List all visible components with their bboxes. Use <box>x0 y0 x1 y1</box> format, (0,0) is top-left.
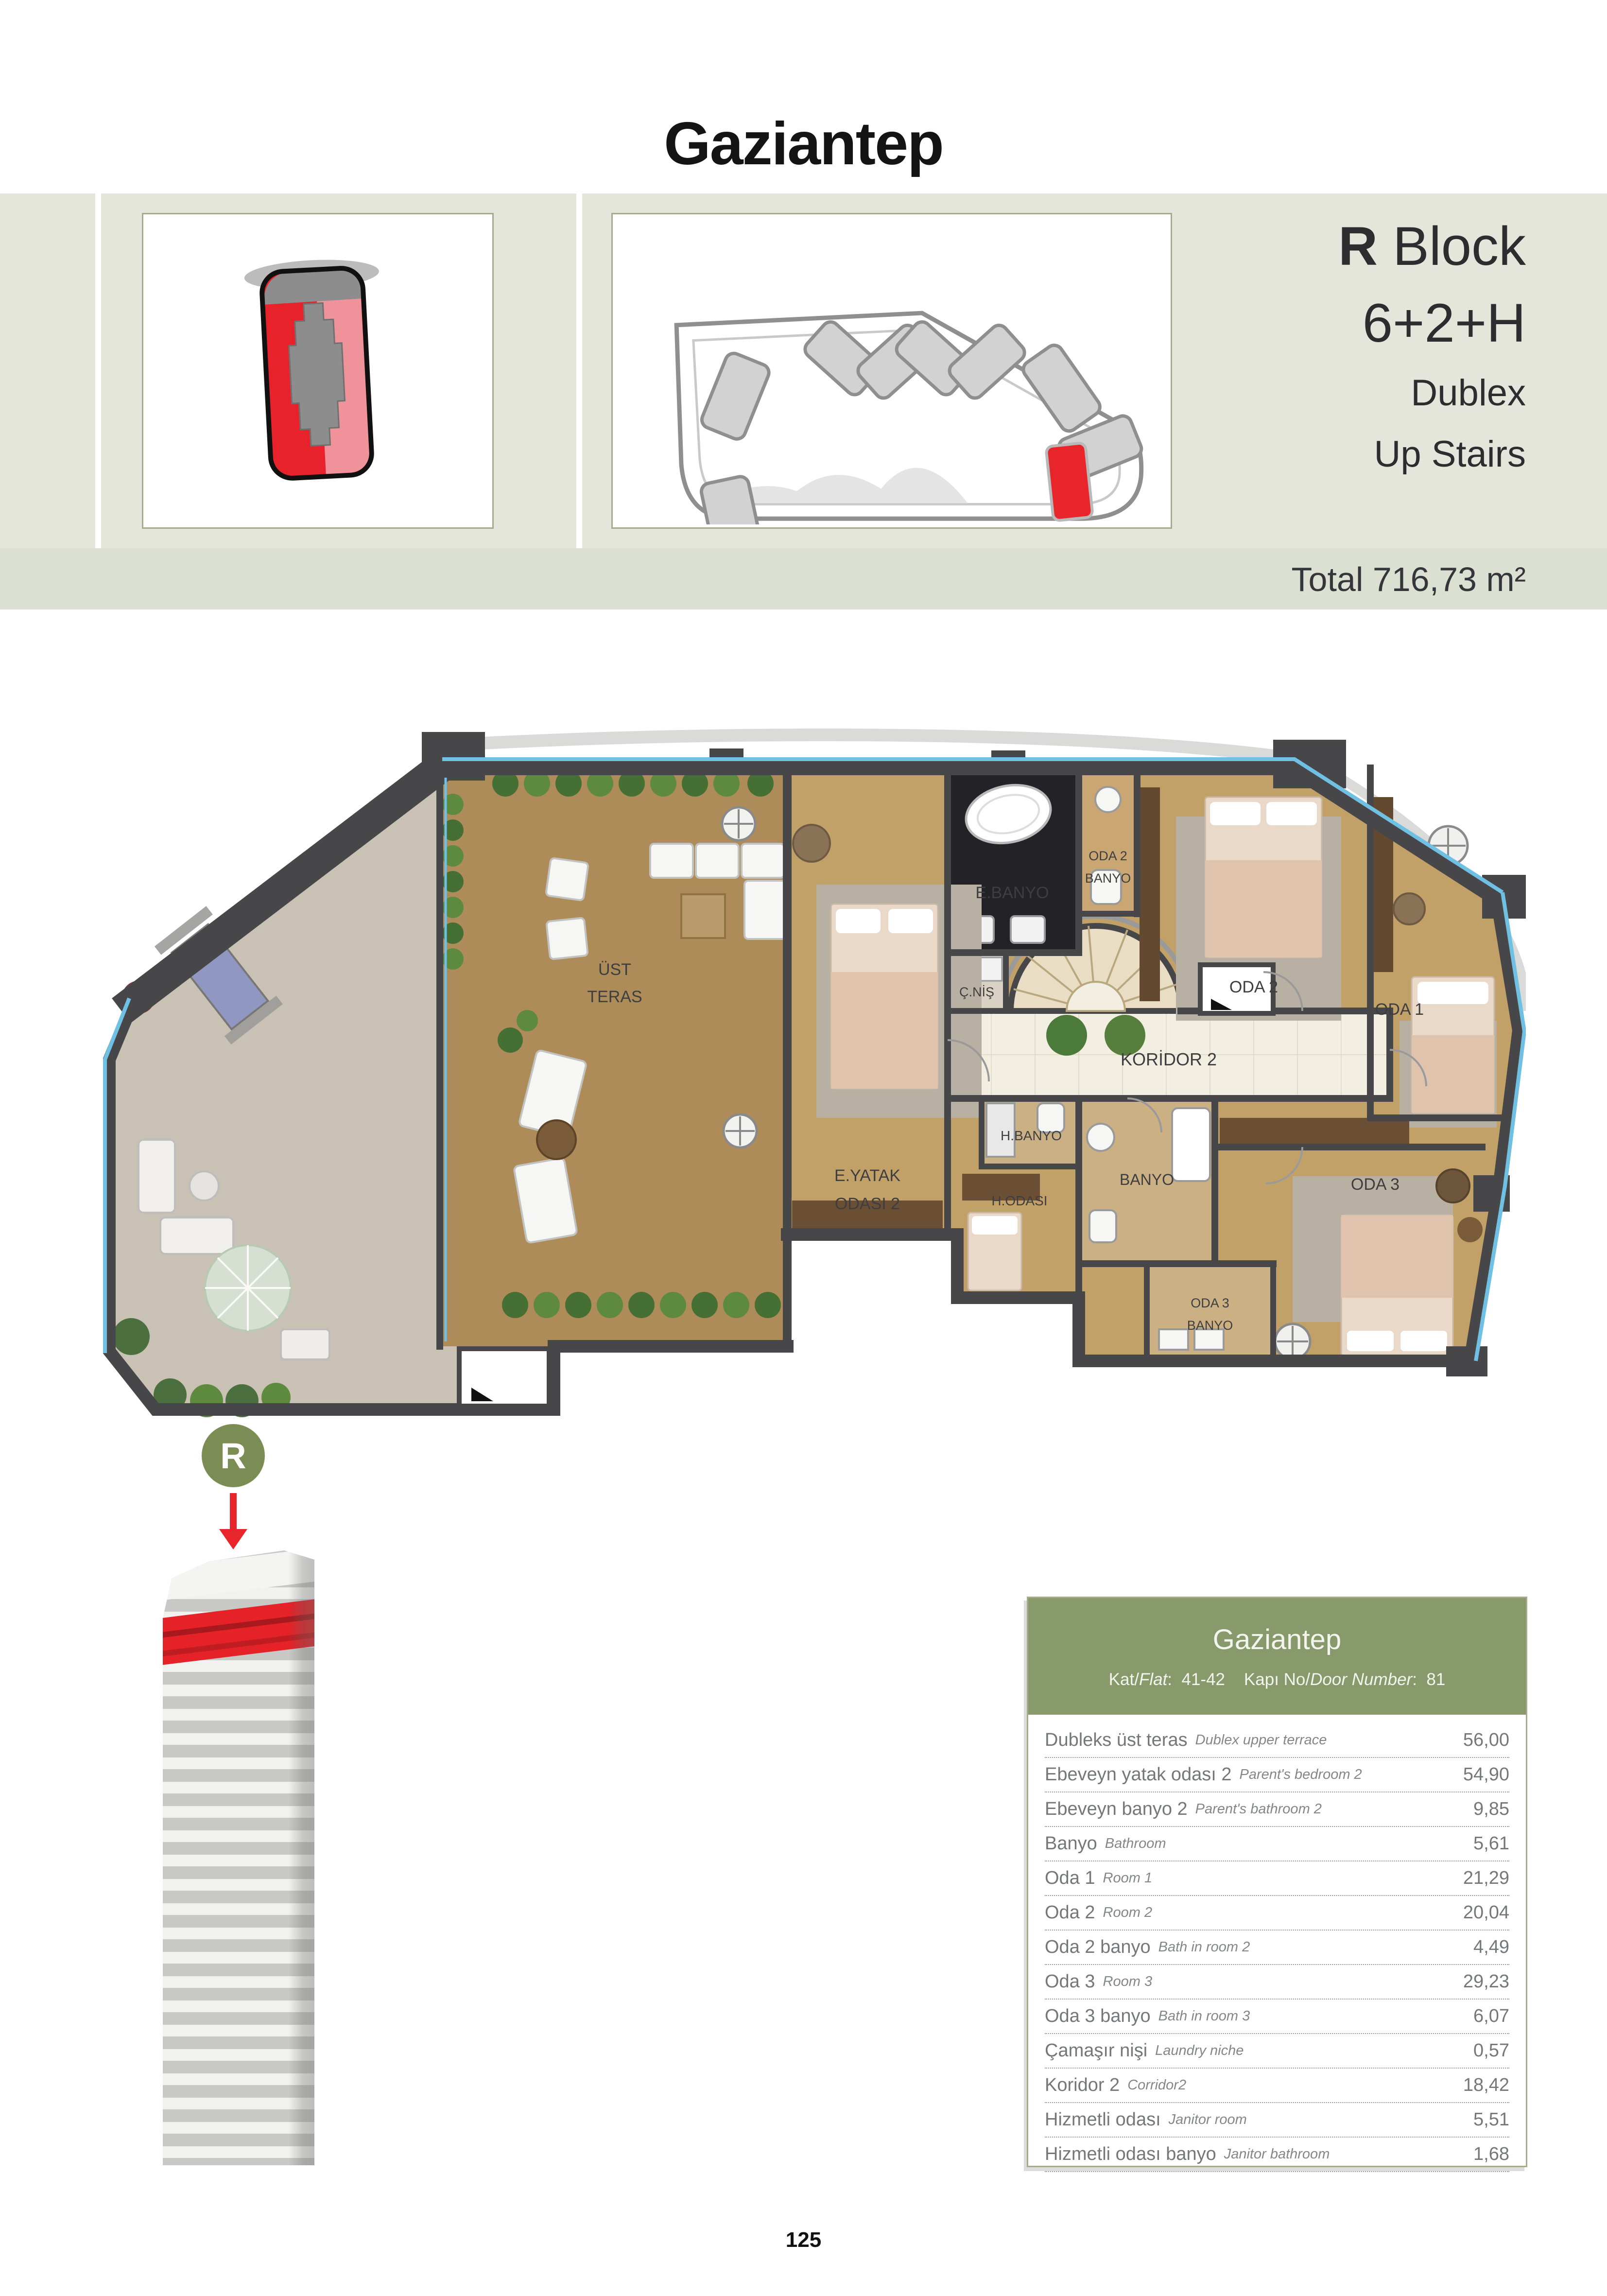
room-label-oda1: ODA 1 <box>1375 1000 1424 1019</box>
armchair <box>793 825 830 862</box>
room-label-banyo: BANYO <box>1120 1171 1174 1188</box>
chair <box>1394 893 1425 924</box>
site-plan-diagram <box>613 214 1168 524</box>
page-number: 125 <box>0 2228 1607 2252</box>
pillow <box>1347 1331 1394 1351</box>
room-label-ust-teras: ÜST <box>598 960 631 979</box>
info-card: Gaziantep Kat/Flat: 41-42 Kapı No/Door N… <box>1027 1597 1527 2167</box>
flat-label: Kat/ <box>1109 1670 1139 1689</box>
pillow <box>972 1216 1018 1235</box>
area-row: Oda 1Room 121,29 <box>1045 1861 1509 1896</box>
type-label: Dublex <box>1157 373 1526 413</box>
svg-text:ODASI 2: ODASI 2 <box>835 1195 900 1213</box>
highlighted-block <box>1046 443 1093 521</box>
band-separator <box>576 193 582 548</box>
layout-label: 6+2+H <box>1157 295 1526 352</box>
room-label-eyatak: E.YATAK <box>834 1166 900 1185</box>
total-area-label: Total 716,73 m² <box>1292 560 1526 599</box>
pillow <box>836 909 881 933</box>
pillow <box>1417 982 1488 1004</box>
blanket <box>1205 860 1322 957</box>
pillow <box>1400 1331 1447 1351</box>
area-row: Oda 2 banyoBath in room 24,49 <box>1045 1931 1509 1965</box>
room-label-oda3-banyo: ODA 3 <box>1191 1296 1229 1310</box>
info-card-header: Gaziantep Kat/Flat: 41-42 Kapı No/Door N… <box>1028 1598 1526 1715</box>
area-row: Hizmetli odası banyoJanitor bathroom1,68 <box>1045 2138 1509 2172</box>
blanket <box>831 972 938 1089</box>
room-label-hbanyo: H.BANYO <box>1001 1128 1062 1143</box>
washbasin <box>1011 916 1045 943</box>
svg-text:BANYO: BANYO <box>1187 1318 1233 1333</box>
room-label-hodasi: H.ODASI <box>991 1193 1047 1208</box>
page-title: Gaziantep <box>0 109 1607 178</box>
blanket <box>1341 1215 1453 1298</box>
area-row: Oda 3 banyoBath in room 36,07 <box>1045 2000 1509 2034</box>
block-title: R Block <box>1157 218 1526 275</box>
wardrobe <box>1140 787 1160 1001</box>
area-row: Koridor 2Corridor218,42 <box>1045 2069 1509 2103</box>
wardrobe <box>1220 1118 1409 1145</box>
area-row: Ebeveyn banyo 2Parent's bathroom 29,85 <box>1045 1792 1509 1827</box>
floor-plan: ÜST TERAS E.YATAK ODASI 2 E.BANYO ODA 2 … <box>87 700 1526 1439</box>
svg-text:BANYO: BANYO <box>1085 871 1131 886</box>
block-badge: R <box>202 1424 265 1487</box>
flat-value: 41-42 <box>1181 1670 1225 1689</box>
level-label: Up Stairs <box>1157 435 1526 474</box>
pouf <box>1457 1217 1483 1242</box>
dryer <box>979 957 1002 981</box>
area-row: BanyoBathroom5,61 <box>1045 1827 1509 1861</box>
ceiling-fan-icon <box>1275 1324 1310 1359</box>
area-table: Dubleks üst terasDublex upper terrace56,… <box>1045 1723 1509 2172</box>
toilet <box>1089 1210 1116 1242</box>
door-label: Kapı No/ <box>1244 1670 1310 1689</box>
area-row: Çamaşır nişiLaundry niche0,57 <box>1045 2034 1509 2069</box>
bathtub <box>1172 1108 1210 1181</box>
area-row: Hizmetli odasıJanitor room5,51 <box>1045 2103 1509 2138</box>
arrow-down-icon <box>230 1493 237 1529</box>
pillow <box>1266 802 1317 825</box>
area-row: Oda 2Room 220,04 <box>1045 1896 1509 1931</box>
brochure-page: Gaziantep <box>0 0 1607 2296</box>
info-card-title: Gaziantep <box>1028 1623 1526 1656</box>
info-card-subtitle: Kat/Flat: 41-42 Kapı No/Door Number: 81 <box>1028 1670 1526 1689</box>
area-row: Ebeveyn yatak odası 2Parent's bedroom 25… <box>1045 1758 1509 1792</box>
sink <box>1095 787 1121 812</box>
room-label-ebanyo: E.BANYO <box>975 884 1049 902</box>
pillow <box>888 909 933 933</box>
band-separator <box>95 193 101 548</box>
tower-figure <box>163 1550 314 2165</box>
room-label-cnis: Ç.NİŞ <box>959 984 994 999</box>
plant <box>1046 1015 1087 1056</box>
arrow-down-icon <box>219 1529 247 1549</box>
tower-shade <box>289 1550 314 2165</box>
door-value: 81 <box>1426 1670 1445 1689</box>
unit-location-thumbnail <box>142 213 494 529</box>
svg-text:TERAS: TERAS <box>587 988 642 1006</box>
pillow <box>1210 802 1261 825</box>
room-label-oda2-banyo: ODA 2 <box>1089 849 1127 863</box>
area-row: Dubleks üst terasDublex upper terrace56,… <box>1045 1723 1509 1758</box>
sink <box>1087 1124 1114 1151</box>
room-label-koridor2: KORİDOR 2 <box>1121 1049 1217 1069</box>
sink <box>1159 1329 1188 1350</box>
room-label-oda3: ODA 3 <box>1351 1175 1400 1194</box>
room-label-oda2: ODA 2 <box>1229 978 1278 996</box>
area-row: Oda 3Room 329,23 <box>1045 1965 1509 2000</box>
site-plan-thumbnail <box>611 213 1172 529</box>
block-info: R Block 6+2+H Dublex Up Stairs <box>1157 218 1526 474</box>
unit-location-diagram <box>143 214 489 524</box>
armchair <box>1436 1169 1469 1202</box>
